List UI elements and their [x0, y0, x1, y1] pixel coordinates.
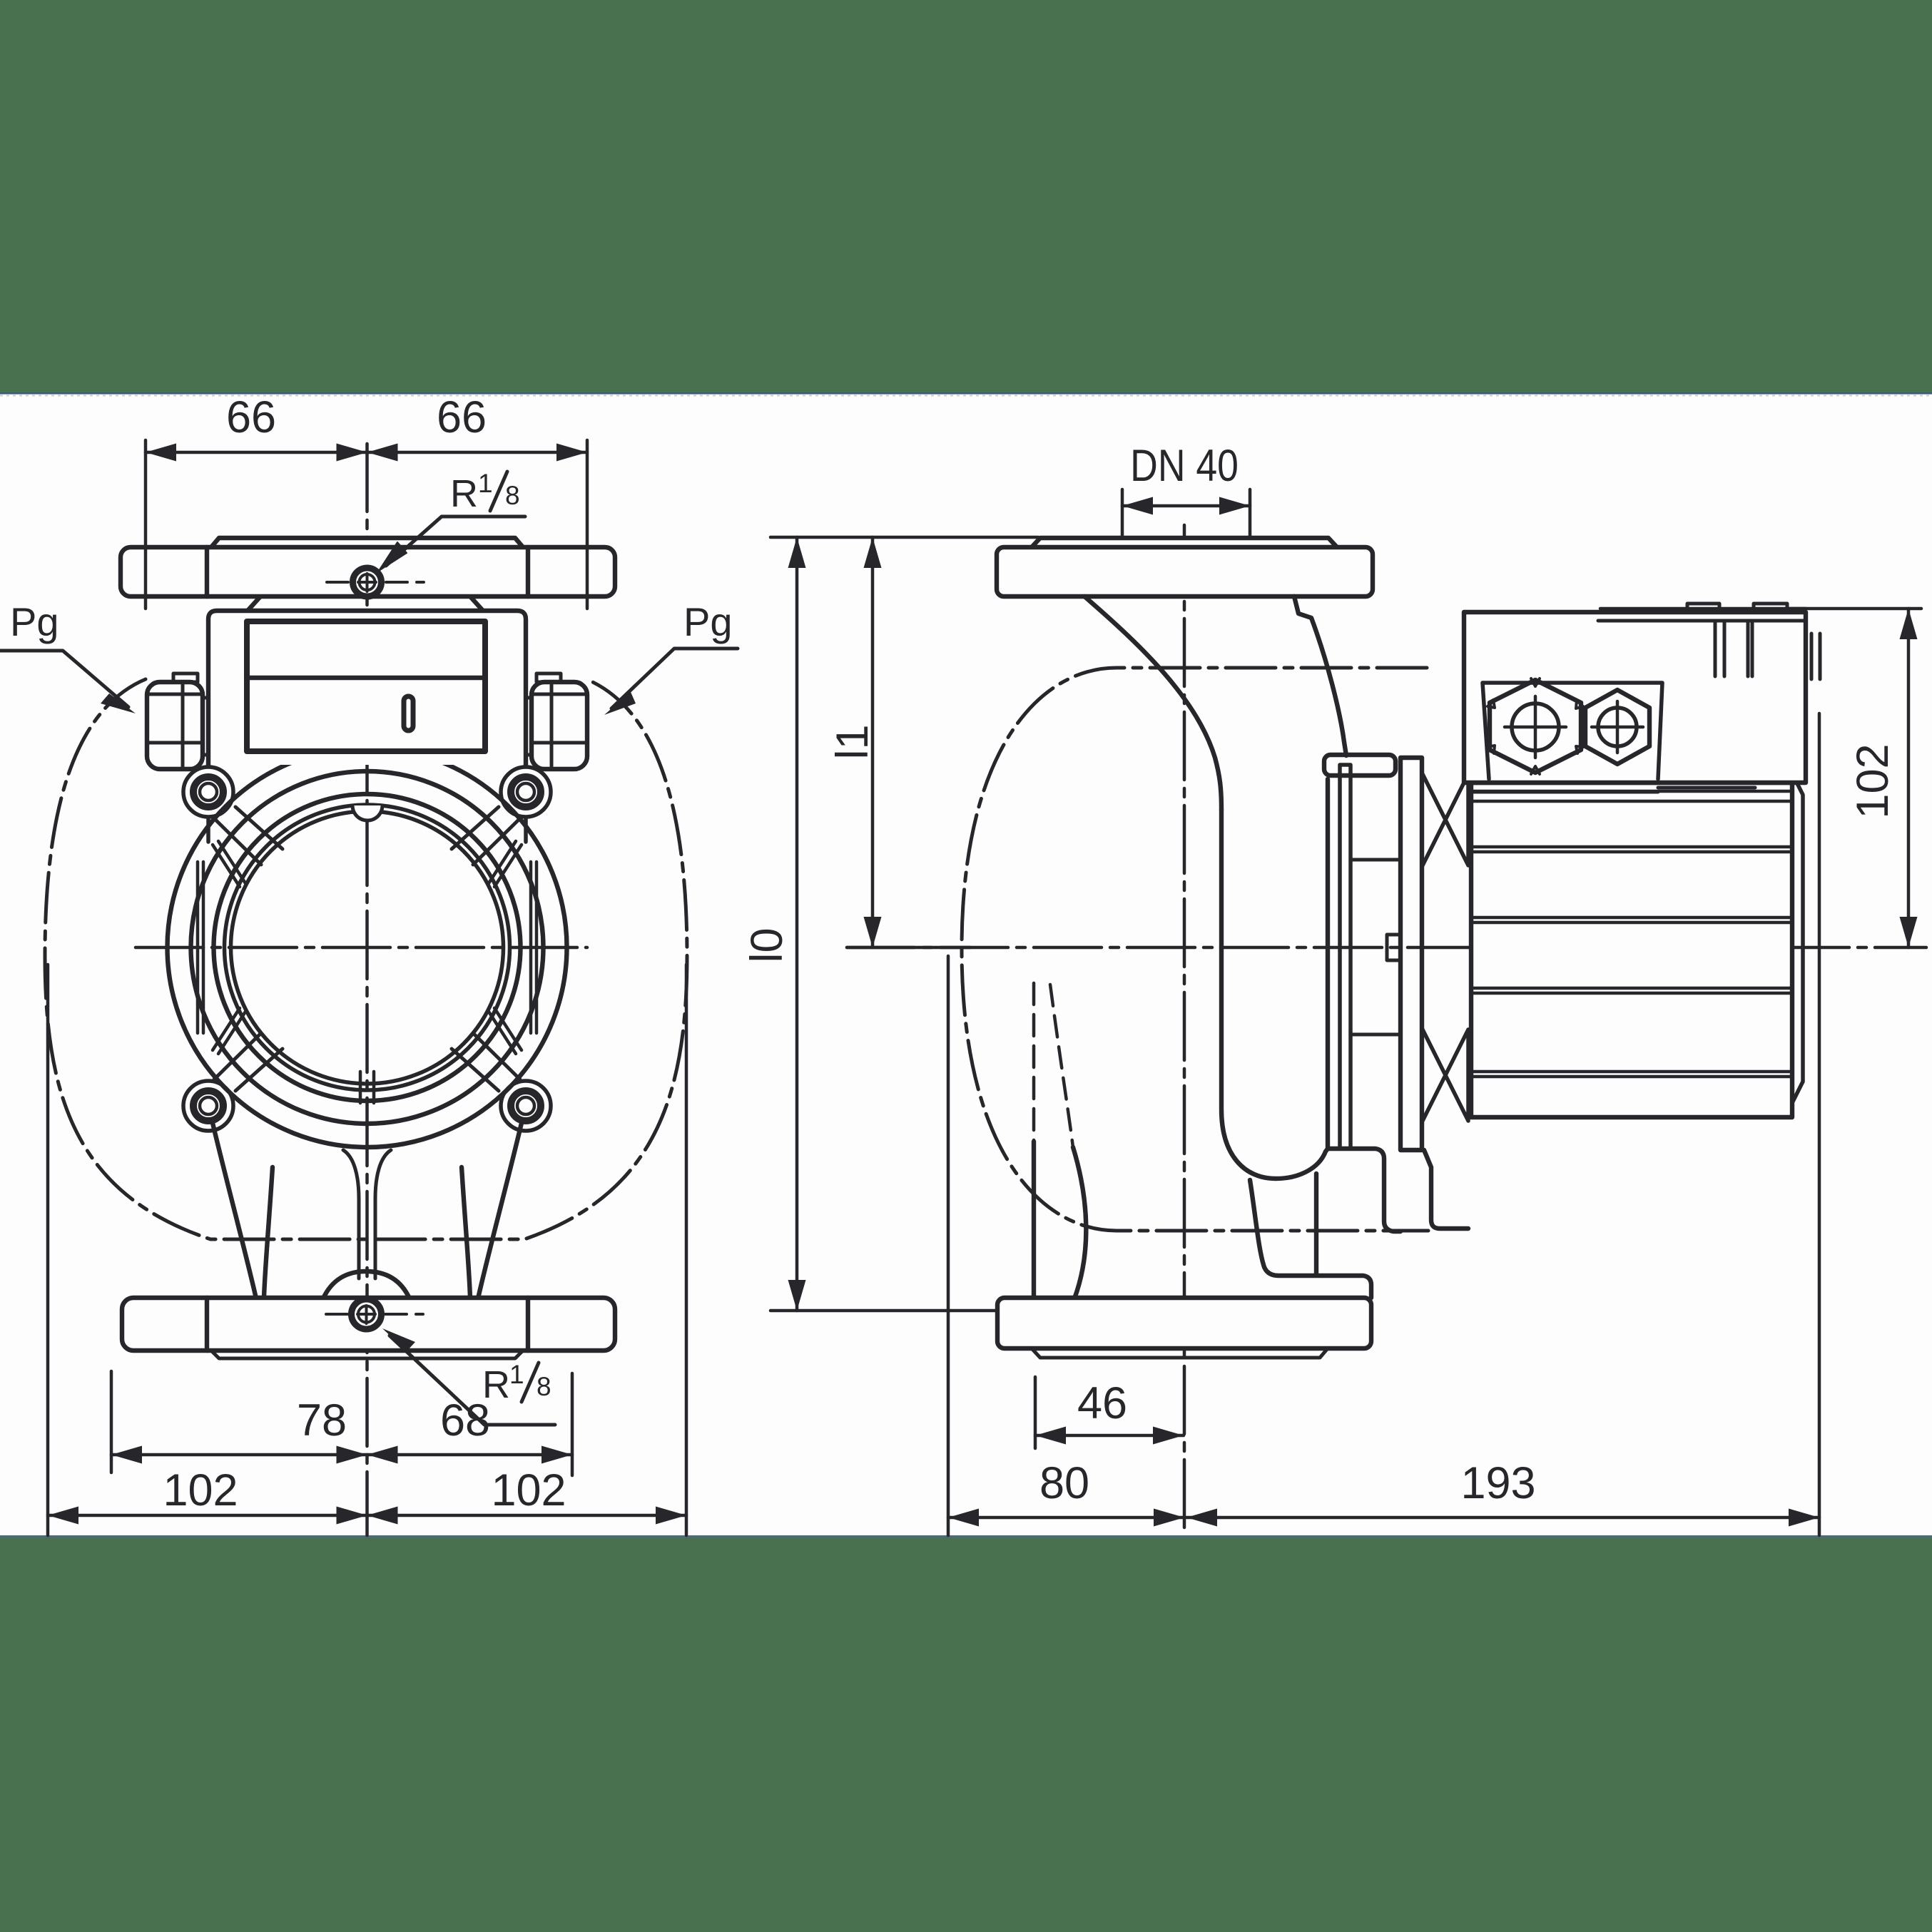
svg-text:102: 102: [163, 1465, 238, 1515]
svg-text:8: 8: [537, 1372, 551, 1401]
svg-text:l0: l0: [742, 927, 792, 962]
svg-text:66: 66: [226, 392, 276, 442]
svg-text:1: 1: [509, 1360, 524, 1389]
svg-text:R: R: [450, 472, 478, 515]
svg-text:DN 40: DN 40: [1130, 441, 1239, 491]
svg-text:Pg: Pg: [10, 599, 59, 644]
svg-text:Pg: Pg: [683, 599, 733, 644]
svg-text:80: 80: [1039, 1458, 1089, 1508]
svg-text:102: 102: [491, 1465, 566, 1515]
svg-text:8: 8: [505, 481, 520, 510]
svg-text:l1: l1: [828, 724, 878, 759]
svg-text:193: 193: [1460, 1458, 1535, 1508]
svg-text:1: 1: [478, 469, 493, 498]
svg-text:66: 66: [437, 392, 487, 442]
svg-text:68: 68: [440, 1395, 490, 1445]
svg-text:46: 46: [1077, 1378, 1127, 1428]
svg-text:102: 102: [1848, 743, 1898, 818]
svg-text:78: 78: [297, 1395, 347, 1445]
